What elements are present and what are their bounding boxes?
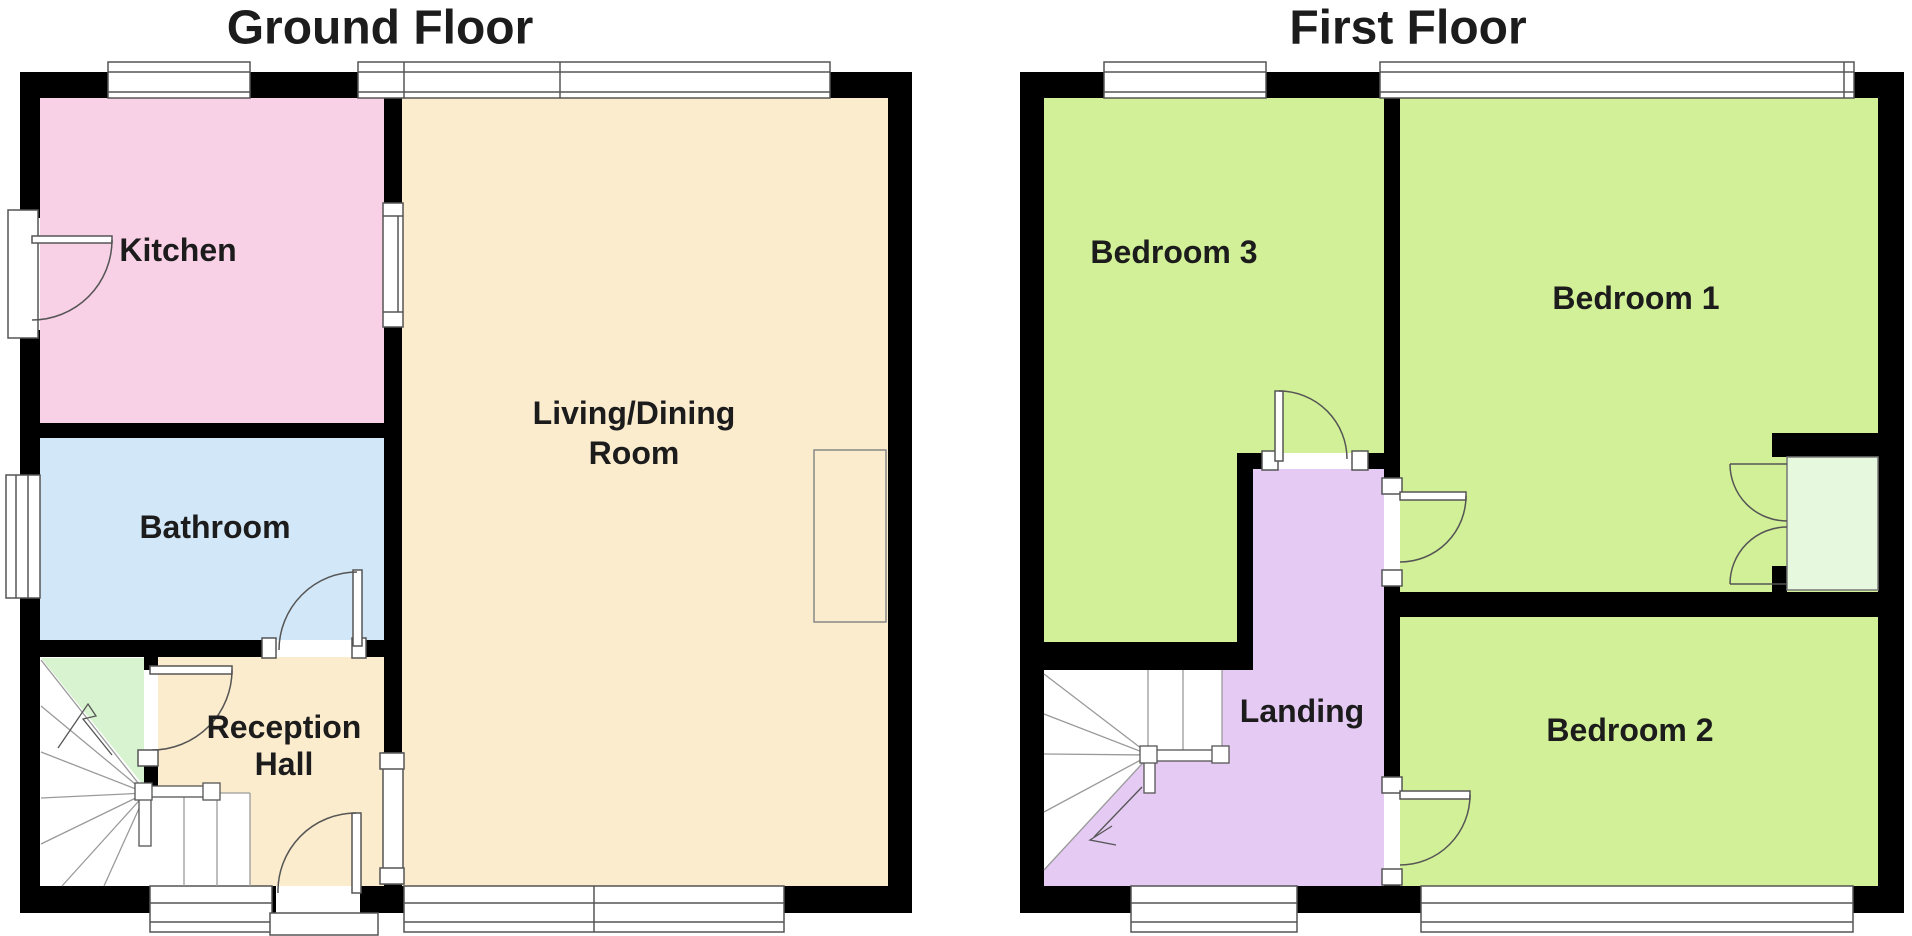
bathroom-window [6, 475, 40, 598]
reception-hall-label-line1: Reception [207, 709, 362, 745]
understairs-window [150, 886, 272, 932]
wall-bedroom3-bottom [1044, 642, 1253, 670]
first-floor-plan: Bedroom 3 Bedroom 1 Bedroom 2 Landing [1020, 62, 1904, 932]
bedroom1-label: Bedroom 1 [1552, 280, 1719, 316]
bedroom3-door-jamb-right [1352, 451, 1368, 470]
cupboard-recess [1787, 457, 1878, 590]
wall-first-right [1878, 72, 1904, 913]
kitchen-door-leaf [32, 236, 112, 243]
hall-living-opening [380, 753, 404, 884]
stair-flight-floor [150, 793, 250, 886]
front-door-step [270, 913, 378, 935]
wall-cupboard-stub [1772, 566, 1787, 592]
serving-hatch [383, 203, 403, 327]
floorplan-canvas: Kitchen Bathroom Living/Dining Room Rece… [0, 0, 1912, 936]
stairs-door-leaf [150, 666, 232, 674]
bathroom-label: Bathroom [139, 509, 290, 545]
newel-post [135, 783, 152, 800]
ground-floor-title: Ground Floor [227, 2, 534, 55]
reception-hall-label-line2: Hall [255, 746, 314, 782]
wall-bedroom3-landing-left [1237, 453, 1253, 642]
living-dining-label-line2: Room [589, 435, 680, 471]
hall-living-gap [383, 753, 403, 884]
hall-living-jamb-top [380, 753, 404, 769]
wall-first-left [1020, 72, 1044, 913]
wall-cupboard-top [1772, 433, 1878, 457]
serving-hatch-opening [383, 203, 403, 327]
wall-ground-right [888, 72, 912, 913]
bedroom2-label: Bedroom 2 [1546, 712, 1713, 748]
floorplan-drawing: Kitchen Bathroom Living/Dining Room Rece… [0, 0, 1912, 936]
bathroom-door-jamb-left [262, 638, 276, 658]
bedroom2-door-jamb-bottom [1382, 869, 1402, 885]
bedroom2-door-jamb-top [1382, 777, 1402, 793]
ground-floor-plan: Kitchen Bathroom Living/Dining Room Rece… [6, 62, 912, 935]
first-handrail-horizontal [1148, 750, 1222, 761]
kitchen-window [108, 62, 250, 98]
bathroom-door-leaf [353, 570, 362, 646]
bedroom3-label: Bedroom 3 [1090, 234, 1257, 270]
front-door-leaf [352, 813, 361, 893]
chimney-breast [814, 450, 886, 622]
kitchen-label: Kitchen [119, 232, 236, 268]
bedroom1-window [1380, 62, 1854, 98]
landing-label: Landing [1240, 693, 1364, 729]
bedroom2-door-leaf [1400, 791, 1470, 799]
kitchen-door-frame [8, 210, 38, 338]
bedroom2-window [1421, 886, 1853, 932]
wall-bedroom1-bedroom2 [1400, 592, 1878, 617]
ground-room-fills [40, 98, 888, 886]
first-newel-post-end [1212, 746, 1229, 763]
living-room-bottom-window [404, 886, 784, 932]
wall-kitchen-bathroom [40, 423, 384, 438]
newel-post-end [203, 783, 220, 800]
bedroom1-door-jamb-top [1382, 478, 1402, 494]
hall-living-jamb-bottom [380, 868, 404, 884]
landing-window [1131, 886, 1297, 932]
first-floor-title: First Floor [1289, 2, 1526, 55]
stairs-door-jamb [138, 750, 158, 766]
living-room-top-window [358, 62, 830, 98]
living-dining-label-line1: Living/Dining [533, 395, 736, 431]
first-newel-post [1140, 746, 1157, 763]
bedroom2-floor [1400, 617, 1878, 886]
bedroom1-door-jamb-bottom [1382, 570, 1402, 586]
bedroom3-door-leaf [1275, 391, 1283, 461]
bedroom1-door-leaf [1400, 492, 1466, 500]
bedroom3-window [1104, 62, 1266, 98]
